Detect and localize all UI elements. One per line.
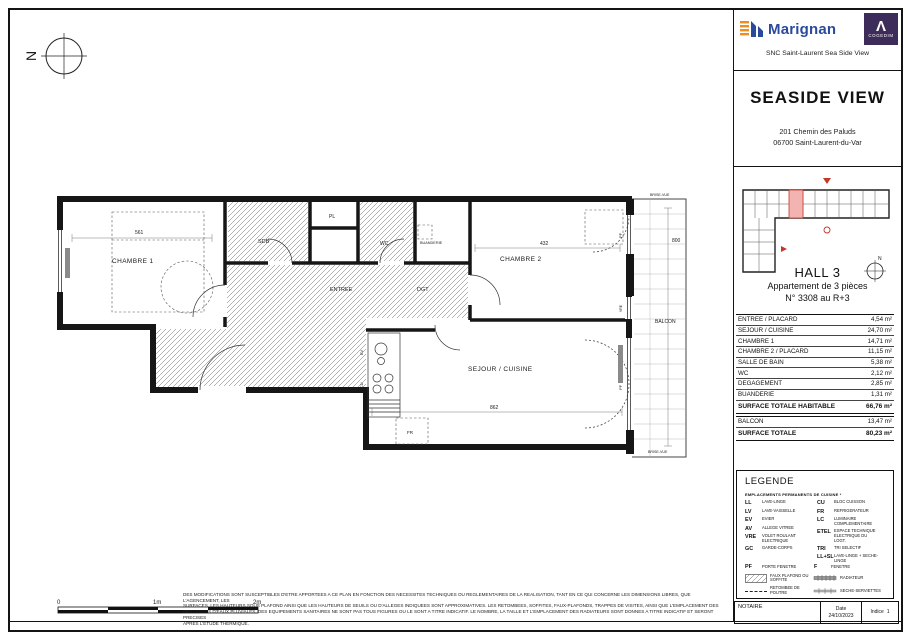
legend-column-right: CUBLOC CUISSON FRREFRIGERATEUR LCLUMINAI… [817, 500, 880, 564]
legend-label: LAVE-VAISSELLE [762, 509, 808, 515]
legend-title: LEGENDE [745, 476, 794, 487]
legend-row-swatches-2: RETOMBEE DE POUTRE SECHE-SERVIETTES [745, 586, 885, 595]
dim-800: 800 [672, 238, 681, 244]
legend-label: LAVE-LINGE [762, 500, 808, 506]
legend-item: LCLUMINAIRE COMPLEMENTAIRE [817, 517, 880, 526]
table-row: CHAMBRE 114,71 m² [736, 336, 894, 347]
legend-item: LL+SLLAVE-LINGE + SECHE-LINGE [817, 554, 880, 563]
floor-plan-drawing: N [0, 0, 730, 639]
legend-label: TRI SELECTIF [834, 546, 880, 552]
table-row: CHAMBRE 2 / PLACARD11,15 m² [736, 347, 894, 358]
room-label-wc: WC [380, 241, 389, 247]
legend-abbr: AV [745, 526, 762, 532]
area-label: CHAMBRE 1 [738, 338, 774, 345]
address-line-2: 06700 Saint-Laurent-du-Var [733, 138, 902, 147]
legend-box: LEGENDE EMPLACEMENTS PERMANENTS DE CUISI… [736, 470, 894, 599]
legend-label: RADIATEUR [840, 576, 885, 581]
area-value: 80,23 m² [866, 430, 892, 437]
snc-line: SNC Saint-Laurent Sea Side View [733, 50, 902, 57]
legend-row-pf-f: PF PORTE FENETRE F FENETRE [745, 564, 885, 570]
towel-radiator-icon [813, 587, 837, 595]
room-label-buanderie: BUANDERIE [420, 241, 443, 245]
disclaimer-text: DES MODIFICATIONS SONT SUSCEPTIBLES D'ET… [183, 592, 723, 626]
room-label-entree: ENTREE [330, 287, 353, 293]
marignan-logo-icon [740, 18, 764, 40]
legend-column-left: LLLAVE-LINGE LVLAVE-VAISSELLE EVEVIER AV… [745, 500, 808, 552]
legend-abbr: PF [745, 564, 762, 570]
area-value: 2,85 m² [871, 380, 892, 387]
table-row: DEGAGEMENT2,85 m² [736, 379, 894, 390]
legend-abbr: CU [817, 500, 834, 506]
area-label: DEGAGEMENT [738, 380, 782, 387]
section-divider [733, 70, 902, 71]
table-row: ENTREE / PLACARD4,54 m² [736, 315, 894, 326]
opening-label-pf-1: PF [618, 232, 623, 238]
floor-plan-sheet: { "header": { "brand_marignan": "Marigna… [0, 0, 910, 639]
indice-value: 1 [887, 609, 890, 616]
area-label: ENTREE / PLACARD [738, 316, 797, 323]
legend-label: BLOC CUISSON [834, 500, 880, 506]
compass-letter: N [23, 51, 39, 61]
area-value: 66,76 m² [866, 403, 892, 410]
area-value: 13,47 m² [868, 418, 892, 425]
area-value: 11,15 m² [868, 348, 892, 355]
legend-item: ETELESPACE TECHNIQUE ELECTRIQUE DU LOGT. [817, 529, 880, 543]
legend-label: EVIER [762, 517, 808, 523]
disclaimer-line: APRES L'ETUDE THERMIQUE. [183, 621, 723, 627]
hatch-entree [227, 265, 366, 387]
area-value: 5,38 m² [871, 359, 892, 366]
legend-item: TRITRI SELECTIF [817, 546, 880, 552]
beam-dashed-line-icon [745, 591, 767, 592]
legend-label: ESPACE TECHNIQUE ELECTRIQUE DU LOGT. [834, 529, 880, 543]
area-value: 4,54 m² [871, 316, 892, 323]
legend-abbr: EV [745, 517, 762, 523]
indice-cell: Indice 1 [861, 602, 898, 623]
legend-item: EVEVIER [745, 517, 808, 523]
hall-label: HALL 3 [733, 265, 902, 280]
legend-abbr: GC [745, 546, 762, 552]
disclaimer-line: DES MODIFICATIONS SONT SUSCEPTIBLES D'ET… [183, 592, 723, 603]
label-brise-vue-bottom: BRISE-VUE [648, 450, 668, 454]
area-value: 24,70 m² [868, 327, 892, 334]
legend-label: PORTE FENETRE [762, 565, 814, 570]
dim-561: 561 [135, 230, 144, 236]
legend-row-swatches-1: FAUX PLAFOND OU SOFFITE RADIATEUR [745, 574, 885, 583]
area-label: WC [738, 370, 748, 377]
cogedim-lambda-icon: Λ [876, 20, 886, 33]
date-value: 24/10/2023 [828, 613, 853, 620]
disclaimer-line: DESCENTES D'EAUX PLUVIALES, DES EQUIPEME… [183, 609, 723, 620]
legend-label: LAVE-LINGE + SECHE-LINGE [834, 554, 880, 563]
legend-abbr: LL [745, 500, 762, 506]
legend-item: VREVOLET ROULANT ELECTRIQUE [745, 534, 808, 543]
legend-bottom: PF PORTE FENETRE F FENETRE FAUX PLAFOND … [745, 564, 885, 596]
highlighted-unit [789, 190, 803, 218]
table-row: SALLE DE BAIN5,38 m² [736, 358, 894, 369]
legend-label: SECHE-SERVIETTES [840, 589, 885, 594]
totals-table: BALCON13,47 m² SURFACE TOTALE80,23 m² [736, 416, 894, 441]
footer-strip: NOTAIRE Date 24/10/2023 Indice 1 [734, 601, 899, 624]
room-label-chambre1: CHAMBRE 1 [112, 258, 154, 265]
area-value: 2,12 m² [871, 370, 892, 377]
room-label-balcon: BALCON [655, 319, 676, 325]
area-label: BALCON [738, 418, 763, 425]
area-value: 14,71 m² [868, 338, 892, 345]
project-title: SEASIDE VIEW [733, 88, 902, 108]
opening-label-pf-2: PF [618, 384, 623, 390]
legend-item: LVLAVE-VAISSELLE [745, 509, 808, 515]
fixture-label-cu: CU [360, 382, 364, 388]
room-label-dgt: DGT [417, 287, 429, 293]
legend-abbr: ETEL [817, 529, 834, 543]
legend-label: RETOMBEE DE POUTRE [770, 586, 813, 595]
area-label: SURFACE TOTALE HABITABLE [738, 403, 835, 410]
table-row: WC2,12 m² [736, 368, 894, 379]
marignan-wordmark: Marignan [768, 21, 836, 38]
legend-item: CUBLOC CUISSON [817, 500, 880, 506]
legend-item: FRREFRIGERATEUR [817, 509, 880, 515]
legend-item: LLLAVE-LINGE [745, 500, 808, 506]
area-label: CHAMBRE 2 / PLACARD [738, 348, 809, 355]
legend-label: LUMINAIRE COMPLEMENTAIRE [834, 517, 880, 526]
area-label: SALLE DE BAIN [738, 359, 784, 366]
site-compass-letter: N [878, 256, 882, 262]
legend-abbr: TRI [817, 546, 834, 552]
opening-label-vre: VRE [619, 304, 623, 312]
hatch-sdb [228, 202, 308, 261]
indice-label: Indice [870, 609, 883, 616]
legend-label: REFRIGERATEUR [834, 509, 880, 515]
room-label-chambre2: CHAMBRE 2 [500, 256, 542, 263]
room-label-sejour: SEJOUR / CUISINE [468, 366, 533, 373]
faux-plafond-swatch-icon [745, 574, 767, 583]
fixture-label-ev: EV [360, 349, 364, 355]
room-label-pl: PL [329, 214, 335, 220]
kitchen-fixtures [368, 333, 400, 417]
legend-label: FENETRE [831, 565, 877, 570]
dim-862: 862 [490, 405, 499, 411]
hatch-wc [360, 202, 413, 261]
legend-abbr: LL+SL [817, 554, 834, 563]
area-value: 1,31 m² [871, 391, 892, 398]
fixture-label-fr: FR [407, 430, 414, 435]
radiator-icon [813, 574, 837, 582]
dim-432: 432 [540, 241, 549, 247]
area-label: BUANDERIE [738, 391, 774, 398]
room-label-sdb: SDB [258, 239, 270, 245]
section-divider [733, 166, 902, 167]
apartment-type: Appartement de 3 pièces [733, 281, 902, 291]
legend-label: ALLEGE VITREE [762, 526, 808, 532]
table-row-total-habitable: SURFACE TOTALE HABITABLE66,76 m² [736, 401, 894, 414]
legend-abbr: LC [817, 517, 834, 526]
area-label: SEJOUR / CUISINE [738, 327, 793, 334]
legend-item: AVALLEGE VITREE [745, 526, 808, 532]
hatch-dgt [360, 265, 468, 318]
scale-1m: 1m [153, 600, 161, 606]
brand-row: Marignan Λ COGEDIM [740, 12, 898, 46]
date-cell: Date 24/10/2023 [820, 602, 861, 623]
north-compass: N [23, 33, 87, 79]
scale-0: 0 [57, 600, 61, 606]
legend-abbr: F [814, 564, 831, 570]
label-brise-vue-top: BRISE-VUE [650, 193, 670, 197]
areas-table: ENTREE / PLACARD4,54 m² SEJOUR / CUISINE… [736, 314, 894, 414]
legend-item: GCGARDE-CORPS [745, 546, 808, 552]
table-row: BUANDERIE1,31 m² [736, 390, 894, 401]
table-row-balcon: BALCON13,47 m² [736, 417, 894, 428]
legend-abbr: LV [745, 509, 762, 515]
address-line-1: 201 Chemin des Paluds [733, 127, 902, 136]
table-row: SEJOUR / CUISINE24,70 m² [736, 326, 894, 337]
legend-abbr: FR [817, 509, 834, 515]
legend-abbr: VRE [745, 534, 762, 543]
legend-note: EMPLACEMENTS PERMANENTS DE CUISINE * [745, 492, 842, 497]
legend-label: VOLET ROULANT ELECTRIQUE [762, 534, 808, 543]
legend-label: FAUX PLAFOND OU SOFFITE [770, 574, 813, 583]
apartment-number: N° 3308 au R+3 [733, 293, 902, 303]
legend-label: GARDE-CORPS [762, 546, 808, 552]
cogedim-wordmark: COGEDIM [868, 33, 893, 38]
hatch-entree-lower [156, 329, 227, 387]
area-label: SURFACE TOTALE [738, 430, 796, 437]
table-row-total: SURFACE TOTALE80,23 m² [736, 428, 894, 441]
cogedim-logo: Λ COGEDIM [864, 13, 898, 45]
notaire-cell: NOTAIRE [735, 602, 820, 623]
